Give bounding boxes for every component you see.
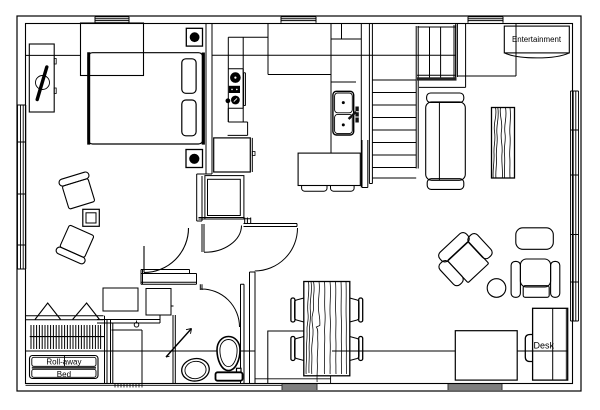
svg-text:Bed: Bed [57,370,71,379]
svg-text:Desk: Desk [534,341,555,351]
svg-text:Entertainment: Entertainment [512,35,562,44]
svg-text:Roll-away: Roll-away [46,358,81,367]
